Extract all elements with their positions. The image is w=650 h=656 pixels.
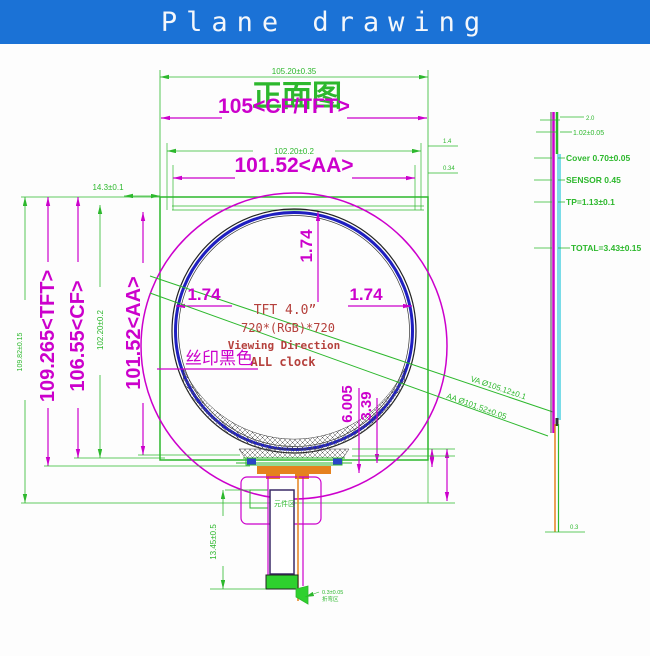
labels: 正面图 105.20±0.35 105<CF/TFT> 102.20±0.2 1… [17, 67, 642, 603]
panel-spec-resolution: 720*(RGB)*720 [241, 321, 335, 335]
side-dim-top: 2.0 [586, 116, 595, 122]
side-label-total: TOTAL=3.43±0.15 [571, 243, 642, 253]
dim-height-tft: 109.265<TFT> [37, 270, 59, 402]
panel-clock-note: ALL clock [250, 355, 316, 369]
dim-height-mid: 102.20±0.2 [96, 309, 105, 350]
dim-width-cf: 105<CF/TFT> [218, 95, 350, 118]
dim-offset-top-left: 14.3±0.1 [92, 183, 124, 192]
dim-gap-right: 1.74 [349, 285, 383, 304]
bend-note-1: 0.3±0.05 [322, 590, 343, 596]
side-label-sensor: SENSOR 0.45 [566, 175, 621, 185]
side-dim-bottom: 0.3 [570, 525, 579, 531]
dim-height-outer-small: 109.82±0.15 [17, 332, 24, 371]
dim-height-aa: 101.52<AA> [123, 276, 145, 389]
dim-edge-tick-lower: 0.34 [443, 166, 455, 172]
cad-drawing: 正面图 105.20±0.35 105<CF/TFT> 102.20±0.2 1… [0, 0, 650, 656]
leader-va-label: VA Ø105.12±0.1 [469, 374, 527, 401]
plane-drawing-page: Plane drawing [0, 0, 650, 656]
dim-gap-left: 1.74 [187, 285, 221, 304]
side-dim-glass: 1.02±0.05 [573, 130, 604, 137]
dim-width-aa: 101.52<AA> [234, 154, 353, 177]
component-area-label: 元件区 [274, 499, 295, 508]
dim-edge-tick-upper: 1.4 [443, 139, 452, 145]
fpc-assembly [210, 458, 342, 604]
component-pad-right [333, 459, 342, 465]
dim-gap-top: 1.74 [297, 229, 316, 263]
fpc-bonding-bar [257, 466, 331, 474]
side-label-cover: Cover 0.70±0.05 [566, 153, 630, 163]
leader-aa-label: AA Ø101.52±0.05 [445, 391, 508, 421]
top-dimensions [21, 70, 458, 210]
dim-height-cf: 106.55<CF> [67, 280, 89, 391]
dim-bottom-a: 6.005 [339, 385, 356, 423]
bend-note-2: 折弯区 [322, 595, 339, 603]
dim-bottom-b: 3.39 [358, 391, 375, 420]
dim-fpc-length: 13.45±0.5 [209, 524, 218, 560]
bottom-ledge-hatch [239, 449, 349, 458]
panel-spec-size: TFT 4.0” [254, 303, 317, 318]
fpc-bend-tab [296, 586, 308, 604]
silk-print-label: 丝印黑色 [185, 349, 253, 368]
dim-top-small: 105.20±0.35 [272, 67, 317, 76]
side-label-tp: TP=1.13±0.1 [566, 197, 615, 207]
fpc-connector [266, 575, 298, 589]
component-pad-left [247, 459, 256, 465]
